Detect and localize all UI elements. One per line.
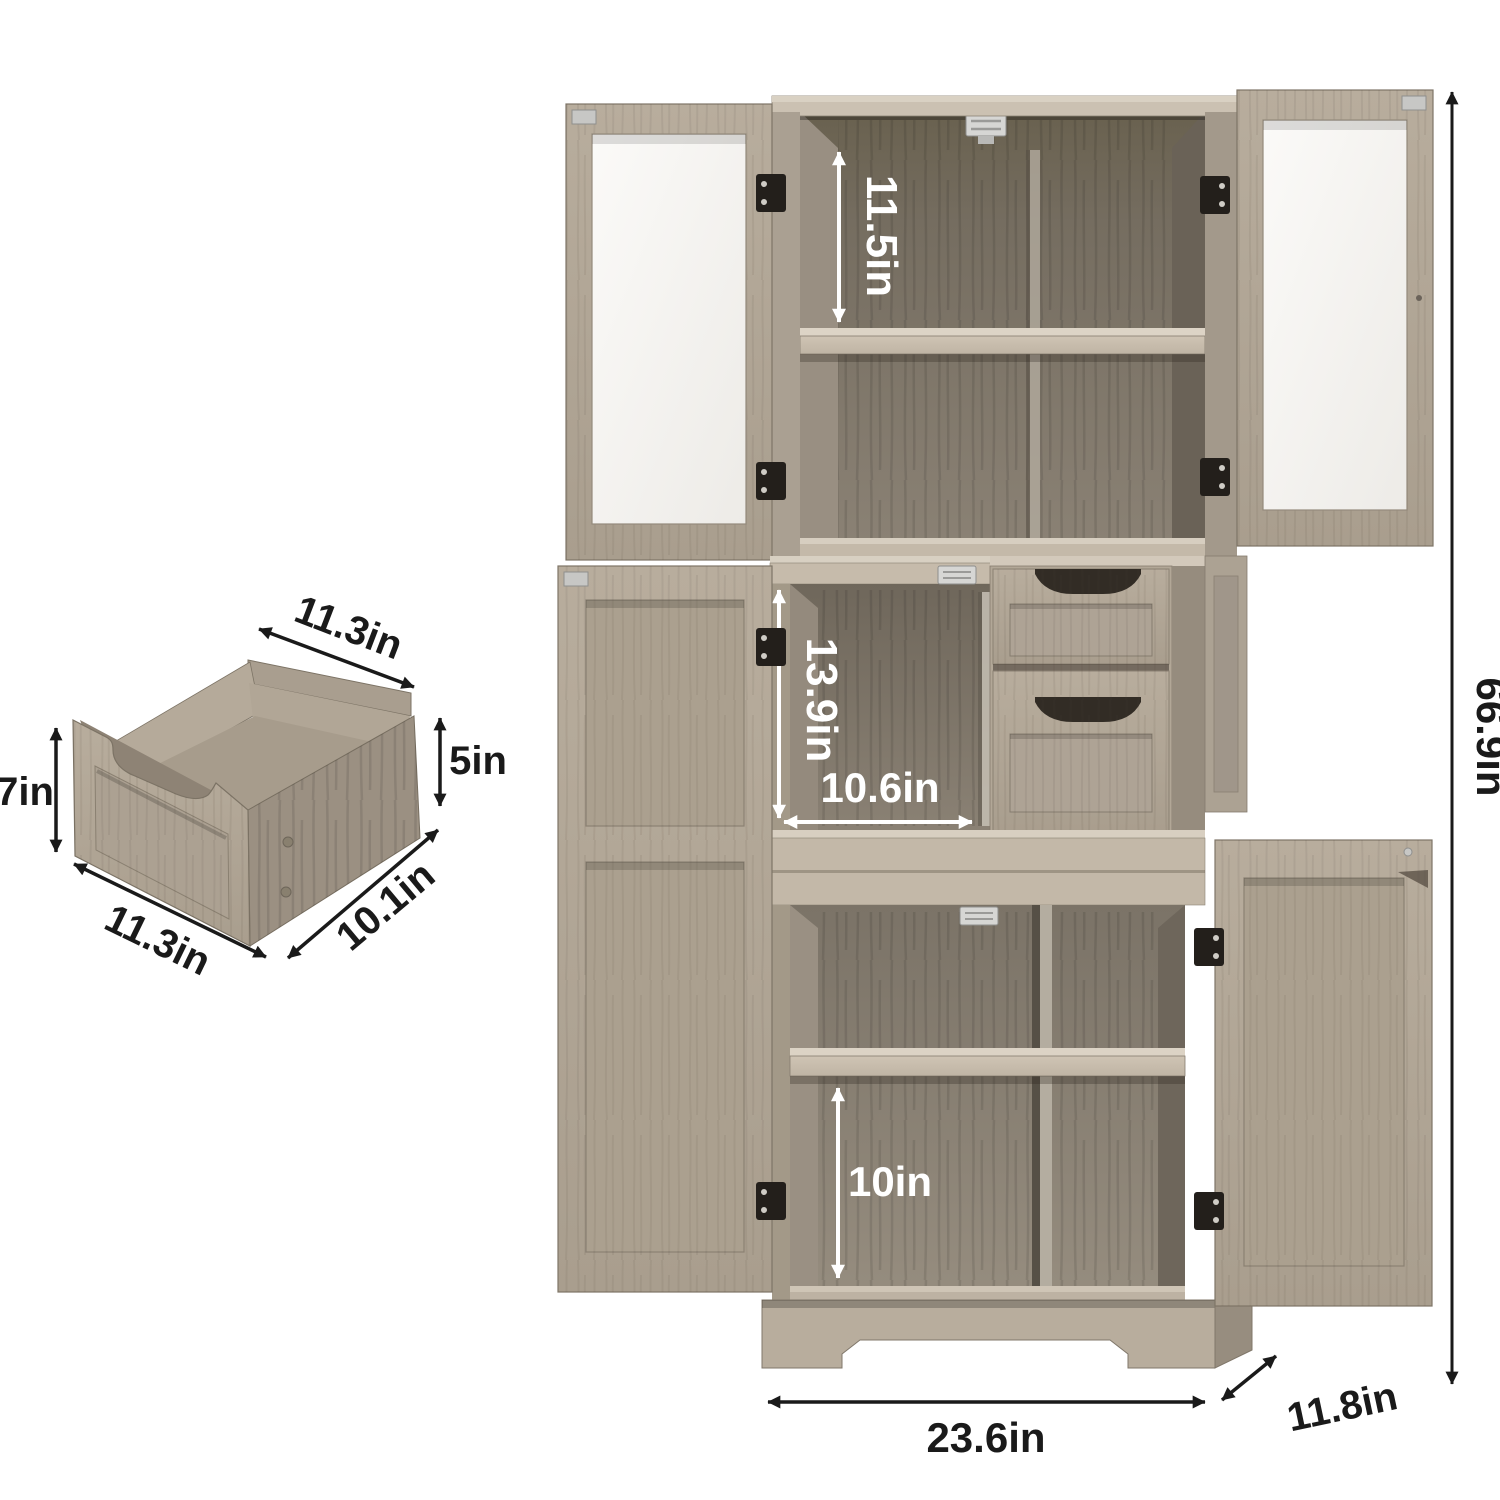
cabinet-diagram: 11.5in [558, 90, 1500, 1461]
bottom-shelf [790, 1056, 1185, 1076]
dim-label-top-compartment-height: 11.5in [857, 175, 906, 297]
dim-depth: 11.8in [1222, 1356, 1401, 1440]
glass-door-right [1237, 90, 1433, 546]
bottom-inner-left-wall [790, 905, 818, 1300]
drawer-unit [990, 556, 1205, 832]
corner-bracket-icon [564, 572, 588, 586]
top-shelf-shadow [800, 354, 1205, 362]
top-module-floor [800, 544, 1205, 556]
dim-label-middle-compartment-width: 10.6in [820, 764, 939, 811]
bottom-shelf-shadow [790, 1076, 1185, 1084]
door-hole [1416, 295, 1422, 301]
screw-icon [283, 837, 293, 847]
dim-label-drawer-side-height: 5in [449, 739, 507, 783]
cabinet-base-shadow [762, 1300, 1215, 1308]
dim-label-depth: 11.8in [1283, 1374, 1401, 1440]
dim-drawer-side-height: 5in [440, 718, 507, 806]
hinge-icon [756, 174, 786, 212]
drawer-unit-grain [993, 569, 1169, 832]
dim-label-overall-height: 66.9in [1468, 677, 1500, 796]
bottom-shelf-highlight [790, 1048, 1185, 1056]
bottom-compartment-grain [818, 912, 1158, 1297]
hinge-icon [1200, 458, 1230, 496]
hinge-icon [756, 462, 786, 500]
bottom-center-divider-shadow [1032, 905, 1040, 1300]
middle-glass-edge-shadow [978, 592, 982, 826]
cabinet-base [762, 1300, 1215, 1368]
glass-door-right-glass [1263, 120, 1407, 510]
top-shelf-highlight [800, 328, 1205, 336]
middle-right-side-panel [1205, 556, 1247, 812]
screw-icon [281, 887, 291, 897]
glass-door-left [566, 104, 772, 560]
cabinet-top-panel-highlight [772, 96, 1277, 102]
dim-overall-width: 23.6in [768, 1402, 1205, 1461]
wood-door-left-grain [558, 566, 772, 1292]
hinge-icon [756, 1182, 786, 1220]
dim-label-bottom-compartment-height: 10in [848, 1158, 932, 1205]
drawer-unit-top [990, 556, 1205, 566]
glass-door-right-glass-shadow [1263, 120, 1407, 130]
door-latch [938, 566, 976, 584]
product-dimension-image: 11.3in 5in 7in 11.3in 10.1in [0, 0, 1500, 1500]
bottom-center-divider [1040, 905, 1052, 1300]
top-shelf [800, 336, 1205, 354]
hinge-icon [1194, 928, 1224, 966]
corner-bracket-icon [1402, 96, 1426, 110]
dim-label-drawer-top-width: 11.3in [289, 587, 409, 668]
wood-door-bottom-right-grain [1215, 840, 1432, 1306]
bottom-carcass-left-wall [772, 905, 790, 1300]
wood-door-bottom-right [1215, 840, 1432, 1306]
dim-label-middle-compartment-height: 13.9in [797, 638, 846, 763]
dim-overall-height: 66.9in [1452, 92, 1500, 1384]
top-module-floor-highlight [800, 538, 1205, 544]
screw-icon [1404, 848, 1412, 856]
bottom-band-highlight [770, 830, 1205, 838]
hinge-icon [1194, 1192, 1224, 1230]
dim-label-overall-width: 23.6in [926, 1414, 1045, 1461]
wood-door-left [558, 566, 772, 1292]
bottom-floor-highlight [790, 1286, 1185, 1292]
diagram-canvas: 11.3in 5in 7in 11.3in 10.1in [0, 0, 1500, 1500]
drawer-diagram: 11.3in 5in 7in 11.3in 10.1in [0, 587, 507, 984]
door-latch [960, 907, 998, 925]
hinge-icon [756, 628, 786, 666]
glass-door-left-glass [592, 134, 746, 524]
glass-door-left-glass-shadow [592, 134, 746, 144]
dim-drawer-front-height: 7in [0, 728, 56, 852]
drawer-unit-side [1172, 566, 1205, 832]
bottom-band-seam [770, 870, 1205, 873]
corner-bracket-icon [572, 110, 596, 124]
dim-label-drawer-front-height: 7in [0, 770, 54, 814]
hinge-icon [1200, 176, 1230, 214]
bottom-inner-right-wall [1158, 905, 1185, 1300]
